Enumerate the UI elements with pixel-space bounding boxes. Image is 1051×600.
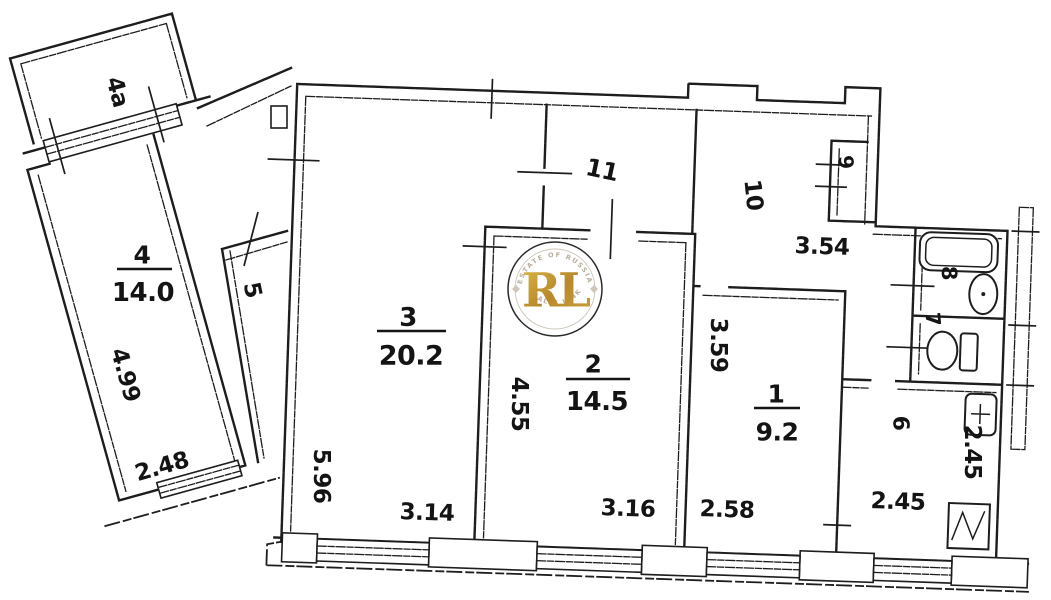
toilet-icon [927,331,958,370]
room-4-number: 4 [134,241,151,270]
window-room1 [706,553,800,578]
toilet-tank [960,333,978,371]
dim-room3-depth: 5.96 [308,449,334,504]
room-11-number: 11 [583,153,621,187]
room-10-number: 10 [738,178,767,212]
wall-notch [271,106,287,128]
dim-room6-depth: 2.45 [959,425,985,480]
watermark-monogram: RL [522,264,591,319]
room-5-number: 5 [238,280,267,301]
room-4-area: 14.0 [112,278,174,308]
dim-room2-depth: 4.55 [506,377,532,432]
bottom-wall-windows [266,532,1030,592]
floorplan-page: 3 20.2 2 14.5 1 9.2 4 14.0 4a 5 6 7 8 9 … [0,0,1051,600]
dim-room4-depth: 4.99 [105,345,145,405]
window-room2 [536,547,642,573]
room-3-area: 20.2 [379,341,444,372]
room-6-number: 6 [887,415,913,431]
floorplan-svg: 3 20.2 2 14.5 1 9.2 4 14.0 4a 5 6 7 8 9 … [0,0,1051,600]
tick-marks [255,71,1044,532]
watermark-logo: ESTATE OF RUSSIA REALTY LINK RL [508,242,602,336]
room-9-number: 9 [833,154,858,169]
room-3-number: 3 [399,303,417,333]
duct-shaft [1011,207,1033,449]
room-7-number: 7 [920,311,945,326]
dim-room1-depth: 3.59 [705,318,731,373]
room-8-number: 8 [937,266,961,281]
room-1-number: 1 [768,380,785,409]
room-2-number: 2 [585,350,602,379]
room-1-area: 9.2 [756,418,799,447]
dim-room1-width: 2.58 [699,496,755,524]
room5-walls [198,68,291,462]
dim-hallway-width: 3.54 [794,233,850,261]
dim-room2-width: 3.16 [600,495,656,523]
dim-room3-width: 3.14 [399,499,455,527]
bathroom-fixtures [916,232,1000,372]
window-room3 [317,539,430,565]
dim-room6-width: 2.45 [870,488,926,516]
room-4a-number: 4a [100,74,133,110]
window-kitchen [873,558,952,583]
room-2-area: 14.5 [566,387,628,417]
